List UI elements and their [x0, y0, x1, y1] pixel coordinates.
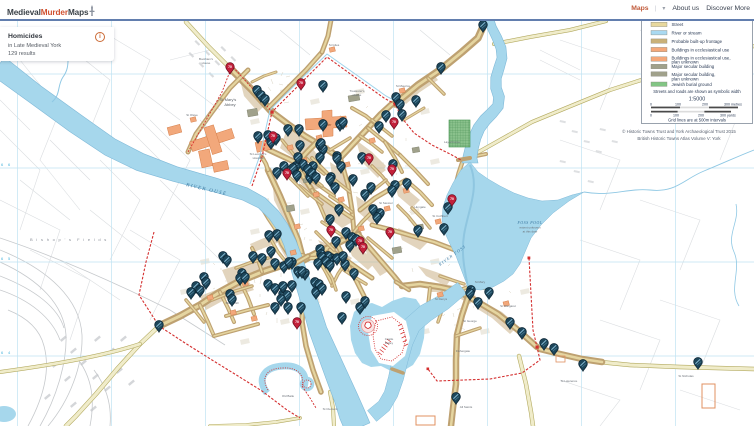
svg-text:200: 200 — [702, 102, 708, 106]
svg-text:at this date: at this date — [523, 230, 538, 234]
svg-text:70: 70 — [299, 81, 303, 85]
svg-text:70: 70 — [329, 228, 333, 232]
svg-text:All Saints: All Saints — [460, 405, 473, 409]
svg-text:plan unknown: plan unknown — [672, 76, 700, 81]
svg-text:300 metres: 300 metres — [724, 102, 742, 106]
svg-text:Jewish burial ground: Jewish burial ground — [672, 82, 713, 87]
svg-text:70: 70 — [228, 65, 232, 69]
svg-text:B i s h o p ’ s F i e l d s: B i s h o p ’ s F i e l d s — [30, 237, 108, 242]
svg-text:Major secular building: Major secular building — [672, 64, 715, 69]
svg-text:70: 70 — [392, 120, 396, 124]
svg-text:St Margaret: St Margaret — [500, 304, 516, 308]
svg-text:70: 70 — [361, 245, 365, 249]
svg-text:70: 70 — [285, 171, 289, 175]
svg-text:River or stream: River or stream — [672, 30, 702, 35]
svg-text:100: 100 — [675, 102, 681, 106]
svg-text:70: 70 — [295, 320, 299, 324]
svg-text:St Olave: St Olave — [186, 113, 198, 117]
svg-text:Bailey: Bailey — [385, 341, 394, 345]
svg-text:St Mary: St Mary — [475, 280, 486, 284]
svg-text:St Clement: St Clement — [323, 407, 338, 411]
svg-text:0: 0 — [650, 102, 652, 106]
svg-text:Grid lines are at 500m interva: Grid lines are at 500m intervals — [668, 117, 726, 122]
svg-text:St Denys: St Denys — [435, 297, 448, 301]
svg-text:House: House — [353, 93, 362, 97]
svg-text:St Cuthbert: St Cuthbert — [432, 214, 447, 218]
svg-text:St Saviour: St Saviour — [379, 201, 393, 205]
svg-text:St Nicholas: St Nicholas — [678, 374, 694, 378]
svg-text:House: House — [202, 61, 211, 65]
svg-text:Hungate: Hungate — [414, 205, 426, 209]
svg-text:Street: Street — [672, 22, 684, 27]
svg-text:St George: St George — [463, 319, 477, 323]
svg-text:0: 0 — [650, 114, 652, 118]
svg-text:70: 70 — [390, 167, 394, 171]
svg-text:Streets and roads are shown as: Streets and roads are shown as symbolic … — [653, 89, 741, 94]
svg-text:St Maurice: St Maurice — [396, 84, 411, 88]
svg-text:70: 70 — [388, 230, 392, 234]
svg-text:Probable built-up frontage: Probable built-up frontage — [672, 39, 723, 44]
svg-text:St Lawrence: St Lawrence — [561, 379, 578, 383]
svg-text:70: 70 — [358, 239, 362, 243]
svg-text:St Giles: St Giles — [329, 43, 340, 47]
svg-text:70: 70 — [367, 156, 371, 160]
svg-text:70: 70 — [450, 197, 454, 201]
svg-text:70: 70 — [271, 134, 275, 138]
svg-text:Abbey: Abbey — [224, 102, 235, 107]
svg-text:Hospital: Hospital — [253, 156, 264, 160]
svg-text:Buildings in ecclesiastical us: Buildings in ecclesiastical use — [672, 47, 730, 52]
svg-text:Layerthorpe: Layerthorpe — [444, 140, 460, 144]
svg-text:Fishergate: Fishergate — [456, 349, 471, 353]
svg-text:Old Baile: Old Baile — [282, 394, 295, 398]
svg-text:FOSS POOL: FOSS POOL — [516, 221, 542, 225]
